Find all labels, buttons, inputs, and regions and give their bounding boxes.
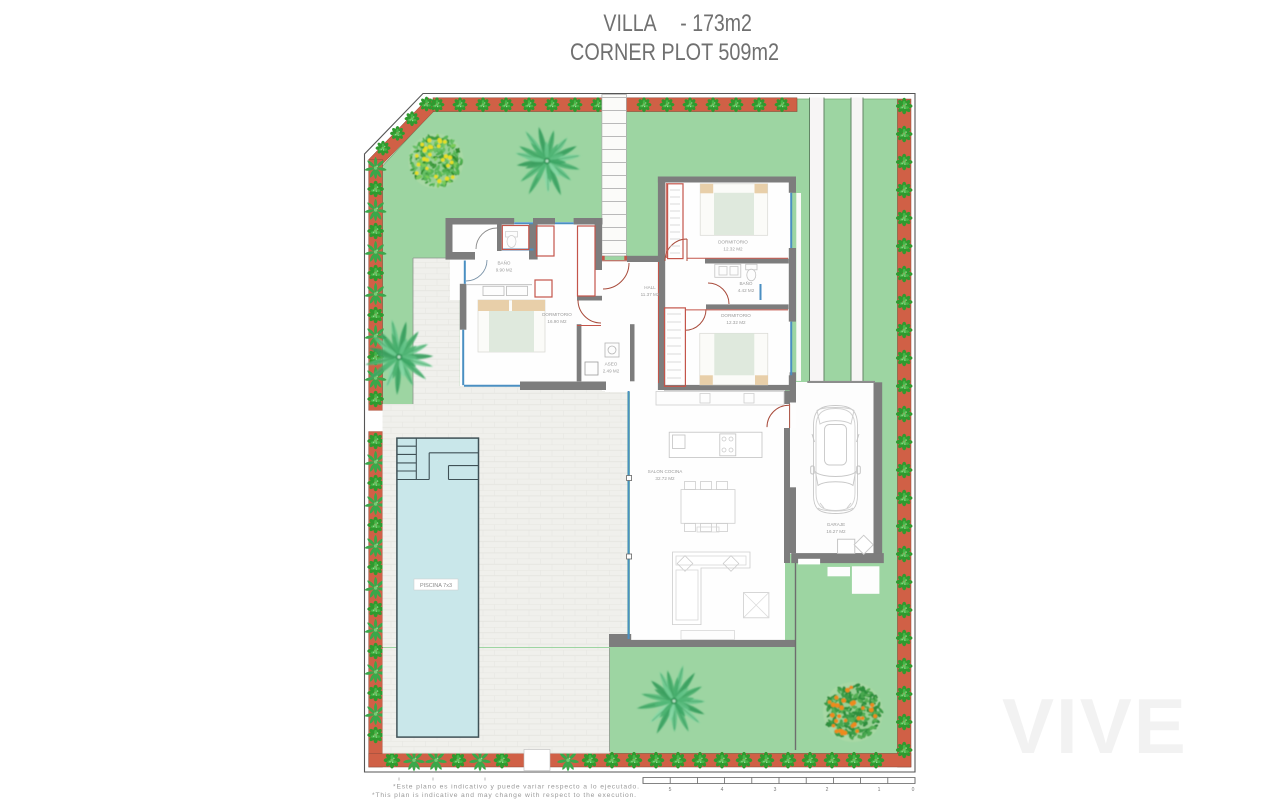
svg-text:5: 5 — [669, 787, 672, 793]
svg-text:11.37 M2: 11.37 M2 — [641, 292, 660, 297]
svg-text:12.32 M2: 12.32 M2 — [723, 247, 743, 252]
svg-text:2.49 M2: 2.49 M2 — [603, 369, 620, 374]
svg-text:DORMITORIO: DORMITORIO — [542, 312, 572, 317]
svg-text:32.72 M2: 32.72 M2 — [655, 476, 675, 481]
svg-text:4: 4 — [721, 787, 724, 793]
svg-text:PISCINA 7x3: PISCINA 7x3 — [420, 583, 452, 589]
svg-text:*Este plano es indicativo y pu: *Este plano es indicativo y puede variar… — [393, 784, 639, 791]
svg-text:0: 0 — [912, 787, 915, 793]
svg-text:1: 1 — [878, 787, 881, 793]
svg-text:DORMITORIO: DORMITORIO — [718, 240, 748, 245]
svg-text:HALL: HALL — [644, 285, 656, 290]
svg-text:16.27 M2: 16.27 M2 — [826, 529, 846, 534]
svg-text:12.32 M2: 12.32 M2 — [726, 320, 746, 325]
svg-text:BAÑO: BAÑO — [739, 280, 752, 286]
svg-text:VILLA: VILLA — [603, 10, 657, 37]
svg-text:BAÑO: BAÑO — [497, 260, 510, 266]
svg-text:- 173m2: - 173m2 — [680, 10, 752, 37]
svg-text:SALON COCINA: SALON COCINA — [648, 469, 684, 474]
svg-text:CORNER PLOT 509m2: CORNER PLOT 509m2 — [570, 39, 779, 66]
svg-text:ASEO: ASEO — [605, 362, 618, 367]
svg-text:*This plan is indicative and m: *This plan is indicative and may change … — [372, 792, 636, 799]
svg-text:16.90 M2: 16.90 M2 — [547, 319, 567, 324]
svg-text:3: 3 — [774, 787, 777, 793]
svg-text:VIVE: VIVE — [1002, 682, 1188, 770]
svg-text:2: 2 — [826, 787, 829, 793]
svg-text:DORMITORIO: DORMITORIO — [721, 313, 751, 318]
svg-text:GARAJE: GARAJE — [827, 522, 845, 527]
svg-text:9.90 M2: 9.90 M2 — [496, 268, 513, 273]
svg-text:4.42 M2: 4.42 M2 — [738, 288, 755, 293]
